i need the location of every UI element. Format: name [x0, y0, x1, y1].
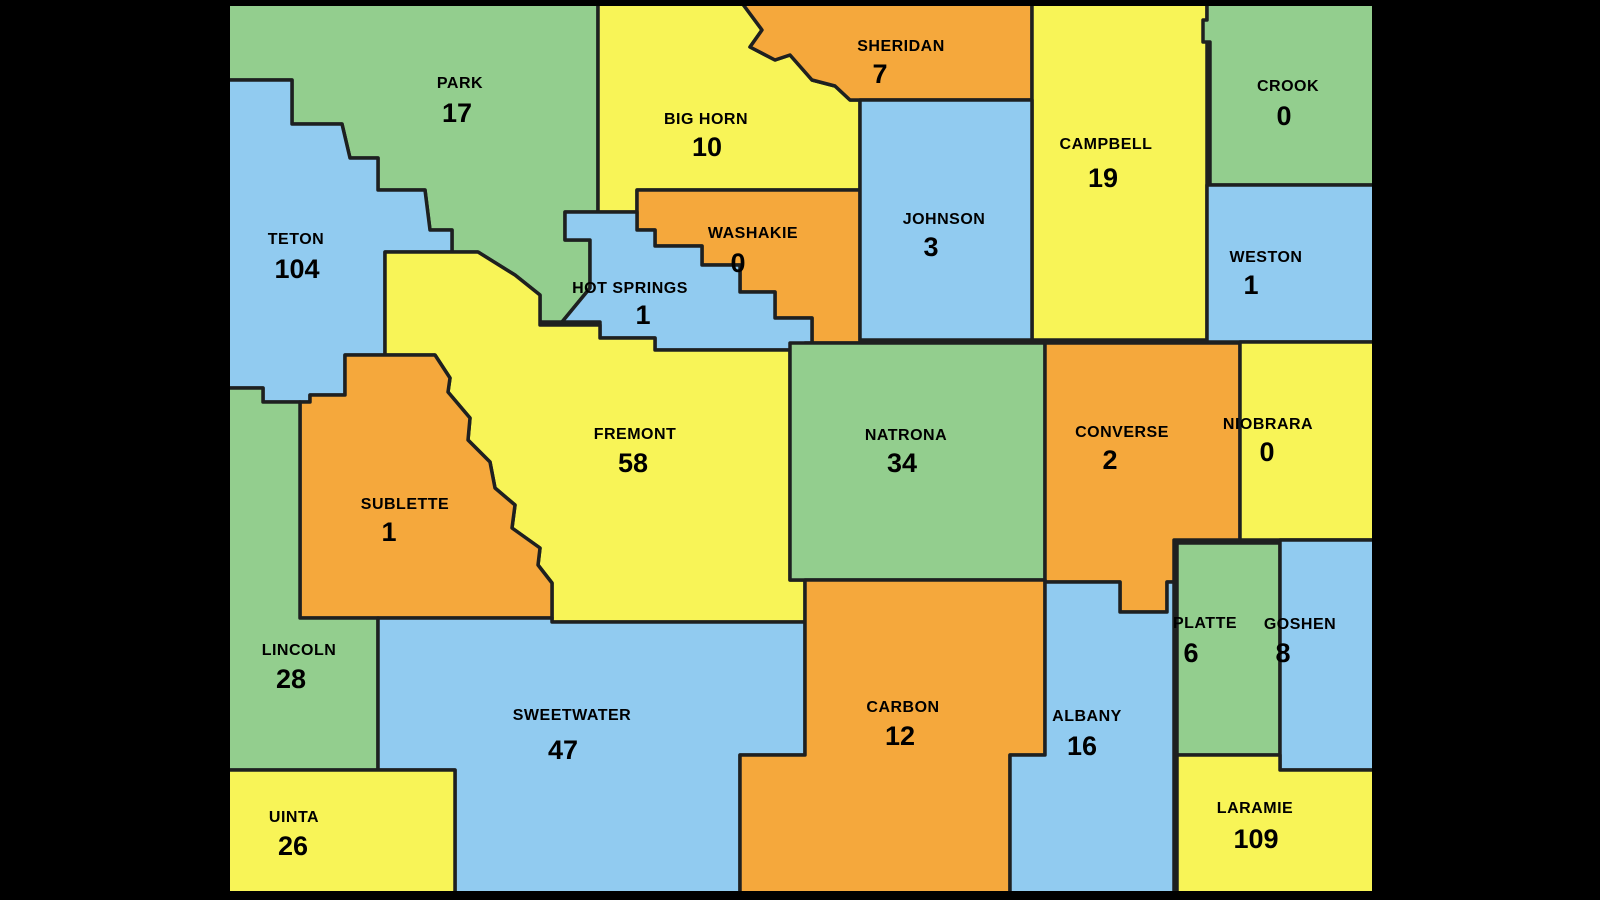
county-label-albany: ALBANY [1052, 708, 1122, 725]
county-value-weston: 1 [1243, 270, 1258, 300]
county-value-niobrara: 0 [1259, 437, 1274, 467]
county-label-hot-springs: HOT SPRINGS [572, 280, 688, 297]
county-value-big-horn: 10 [692, 132, 722, 162]
county-label-washakie: WASHAKIE [708, 225, 798, 242]
county-value-washakie: 0 [730, 248, 745, 278]
county-value-natrona: 34 [887, 448, 917, 478]
county-value-teton: 104 [274, 254, 319, 284]
county-value-laramie: 109 [1233, 824, 1278, 854]
county-label-fremont: FREMONT [594, 426, 677, 443]
county-value-carbon: 12 [885, 721, 915, 751]
county-label-platte: PLATTE [1173, 615, 1237, 632]
county-goshen [1280, 540, 1374, 770]
county-value-uinta: 26 [278, 831, 308, 861]
county-label-johnson: JOHNSON [903, 211, 986, 228]
county-value-crook: 0 [1276, 101, 1291, 131]
county-label-campbell: CAMPBELL [1060, 136, 1153, 153]
county-label-laramie: LARAMIE [1217, 800, 1293, 817]
county-value-albany: 16 [1067, 731, 1097, 761]
map-stage: PARK17BIG HORN10SHERIDAN7CAMPBELL19CROOK… [0, 0, 1600, 900]
county-value-park: 17 [442, 98, 472, 128]
county-value-hot-springs: 1 [635, 300, 650, 330]
county-value-platte: 6 [1183, 638, 1198, 668]
county-value-johnson: 3 [923, 232, 938, 262]
county-label-sheridan: SHERIDAN [857, 38, 945, 55]
county-label-niobrara: NIOBRARA [1223, 416, 1313, 433]
county-value-lincoln: 28 [276, 664, 306, 694]
county-value-sweetwater: 47 [548, 735, 578, 765]
county-natrona [790, 343, 1045, 580]
county-value-goshen: 8 [1275, 638, 1290, 668]
county-label-converse: CONVERSE [1075, 424, 1169, 441]
county-label-teton: TETON [268, 231, 324, 248]
county-label-carbon: CARBON [866, 699, 939, 716]
county-label-goshen: GOSHEN [1264, 616, 1336, 633]
county-value-sheridan: 7 [872, 59, 887, 89]
county-label-weston: WESTON [1230, 249, 1303, 266]
county-label-lincoln: LINCOLN [262, 642, 337, 659]
county-label-sweetwater: SWEETWATER [513, 707, 631, 724]
county-label-uinta: UINTA [269, 809, 319, 826]
wyoming-county-map: PARK17BIG HORN10SHERIDAN7CAMPBELL19CROOK… [0, 0, 1600, 900]
county-value-campbell: 19 [1088, 163, 1118, 193]
county-value-sublette: 1 [381, 517, 396, 547]
county-uinta [227, 770, 455, 894]
county-campbell [1032, 3, 1207, 340]
county-value-fremont: 58 [618, 448, 648, 478]
county-label-park: PARK [437, 75, 483, 92]
county-label-big-horn: BIG HORN [664, 111, 748, 128]
county-label-natrona: NATRONA [865, 427, 947, 444]
county-value-converse: 2 [1102, 445, 1117, 475]
county-label-crook: CROOK [1257, 78, 1319, 95]
county-label-sublette: SUBLETTE [361, 496, 449, 513]
